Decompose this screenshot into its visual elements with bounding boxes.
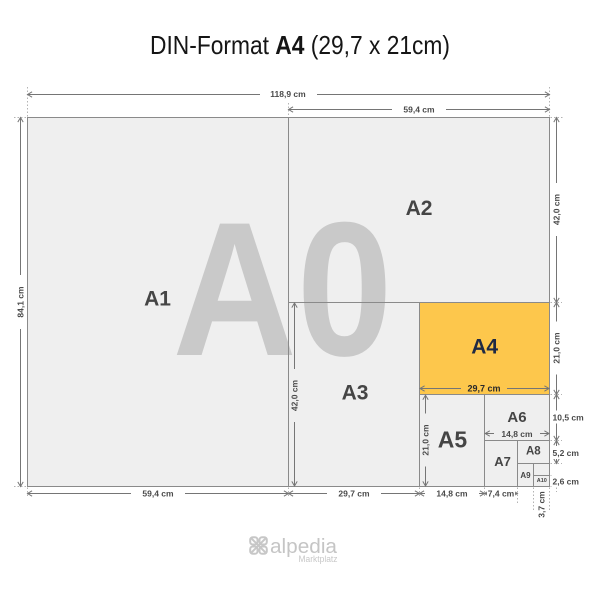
svg-text:3,7 cm: 3,7 cm: [537, 491, 547, 518]
svg-text:A4: A4: [471, 336, 498, 359]
svg-text:84,1 cm: 84,1 cm: [16, 286, 26, 318]
svg-text:7,4 cm: 7,4 cm: [488, 489, 515, 499]
svg-text:14,8 cm: 14,8 cm: [436, 489, 468, 499]
svg-text:21,0 cm: 21,0 cm: [552, 332, 562, 364]
svg-text:10,5 cm: 10,5 cm: [553, 413, 585, 423]
svg-text:59,4 cm: 59,4 cm: [403, 104, 435, 114]
svg-text:A1: A1: [144, 288, 171, 311]
svg-text:29,7 cm: 29,7 cm: [338, 489, 370, 499]
svg-text:5,2 cm: 5,2 cm: [553, 448, 580, 458]
svg-text:A5: A5: [438, 427, 468, 453]
svg-text:A7: A7: [494, 454, 511, 469]
svg-text:21,0 cm: 21,0 cm: [421, 424, 431, 456]
svg-text:A6: A6: [507, 409, 526, 426]
svg-text:A10: A10: [537, 478, 547, 484]
svg-text:2,6 cm: 2,6 cm: [553, 477, 580, 487]
svg-text:42,0 cm: 42,0 cm: [552, 193, 562, 225]
svg-text:A9: A9: [520, 471, 531, 480]
svg-text:DIN-Format A4 (29,7 x 21cm): DIN-Format A4 (29,7 x 21cm): [150, 30, 450, 60]
svg-text:A8: A8: [526, 445, 541, 457]
svg-text:118,9 cm: 118,9 cm: [270, 89, 306, 99]
svg-text:A3: A3: [342, 382, 369, 405]
svg-text:42,0 cm: 42,0 cm: [290, 379, 300, 411]
svg-text:29,7 cm: 29,7 cm: [467, 384, 500, 394]
svg-text:59,4 cm: 59,4 cm: [142, 489, 174, 499]
svg-text:Marktplatz: Marktplatz: [299, 554, 338, 564]
svg-text:A0: A0: [173, 183, 393, 396]
svg-text:A2: A2: [406, 197, 433, 220]
svg-text:14,8 cm: 14,8 cm: [501, 429, 533, 439]
